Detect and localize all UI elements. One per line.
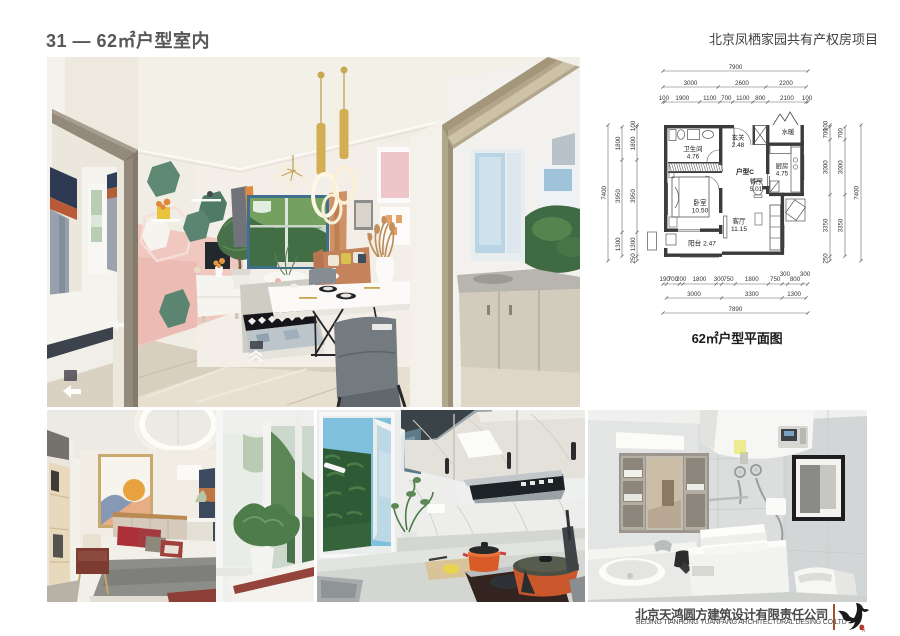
svg-text:3000: 3000	[687, 291, 701, 298]
svg-text:100: 100	[802, 95, 813, 102]
svg-text:水暖: 水暖	[782, 127, 795, 136]
svg-text:1800: 1800	[630, 136, 637, 150]
svg-text:R: R	[862, 628, 866, 633]
svg-text:11.15: 11.15	[731, 226, 747, 233]
svg-text:3000: 3000	[838, 160, 845, 174]
svg-text:3350: 3350	[838, 218, 845, 232]
svg-text:客厅: 客厅	[732, 217, 746, 226]
svg-text:700: 700	[721, 95, 732, 102]
svg-text:800: 800	[755, 95, 766, 102]
svg-text:卧室: 卧室	[693, 198, 707, 207]
svg-text:1300: 1300	[787, 291, 801, 298]
svg-text:5.01: 5.01	[750, 186, 763, 193]
svg-text:200: 200	[676, 276, 687, 283]
svg-text:3350: 3350	[823, 218, 830, 232]
svg-text:300: 300	[800, 271, 811, 278]
svg-text:750: 750	[723, 276, 734, 283]
svg-text:1100: 1100	[703, 95, 717, 102]
svg-text:餐厅: 餐厅	[750, 177, 763, 186]
svg-text:1800: 1800	[693, 276, 707, 283]
svg-text:7890: 7890	[729, 306, 743, 313]
svg-text:2200: 2200	[779, 80, 793, 87]
svg-text:100: 100	[630, 120, 637, 131]
svg-text:4.76: 4.76	[687, 154, 700, 161]
svg-text:卫生间: 卫生间	[683, 144, 702, 153]
svg-text:玄关: 玄关	[732, 133, 745, 142]
svg-text:3300: 3300	[745, 291, 759, 298]
svg-text:3000: 3000	[684, 80, 698, 87]
svg-text:户型C: 户型C	[736, 167, 754, 176]
svg-text:阳台 2.47: 阳台 2.47	[688, 239, 716, 248]
svg-text:1800: 1800	[615, 136, 622, 150]
svg-text:2600: 2600	[735, 80, 749, 87]
svg-text:10.50: 10.50	[692, 208, 709, 215]
svg-text:3000: 3000	[823, 160, 830, 174]
svg-text:1800: 1800	[745, 276, 759, 283]
svg-text:7900: 7900	[729, 64, 743, 71]
svg-text:1300: 1300	[615, 237, 622, 251]
svg-text:厨房: 厨房	[776, 161, 789, 170]
svg-text:7400: 7400	[601, 185, 608, 199]
svg-text:3950: 3950	[630, 189, 637, 203]
svg-text:1900: 1900	[675, 95, 689, 102]
svg-text:7400: 7400	[854, 185, 861, 199]
svg-text:3950: 3950	[615, 189, 622, 203]
svg-text:700: 700	[823, 128, 830, 139]
svg-text:2.48: 2.48	[732, 142, 745, 149]
svg-text:700: 700	[838, 128, 845, 139]
svg-text:100: 100	[659, 95, 670, 102]
svg-text:2100: 2100	[780, 95, 794, 102]
svg-text:1100: 1100	[736, 95, 750, 102]
svg-text:1300: 1300	[630, 237, 637, 251]
svg-text:4.75: 4.75	[776, 171, 789, 178]
